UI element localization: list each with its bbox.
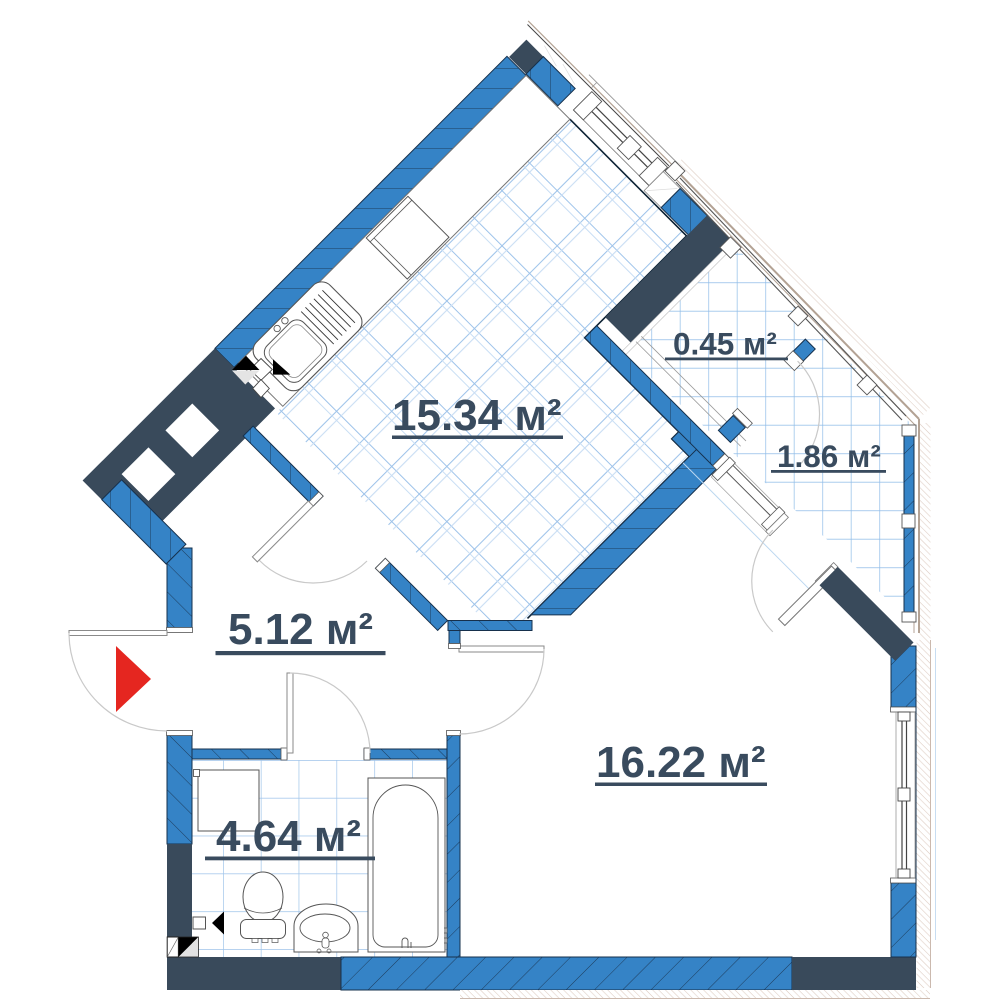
svg-text:1.86 м²: 1.86 м² [777,438,881,474]
svg-text:5.12 м²: 5.12 м² [228,605,373,654]
svg-text:4.64 м²: 4.64 м² [216,812,361,861]
svg-text:15.34 м²: 15.34 м² [392,391,562,440]
svg-text:16.22 м²: 16.22 м² [596,738,766,787]
svg-text:0.45 м²: 0.45 м² [673,326,777,362]
